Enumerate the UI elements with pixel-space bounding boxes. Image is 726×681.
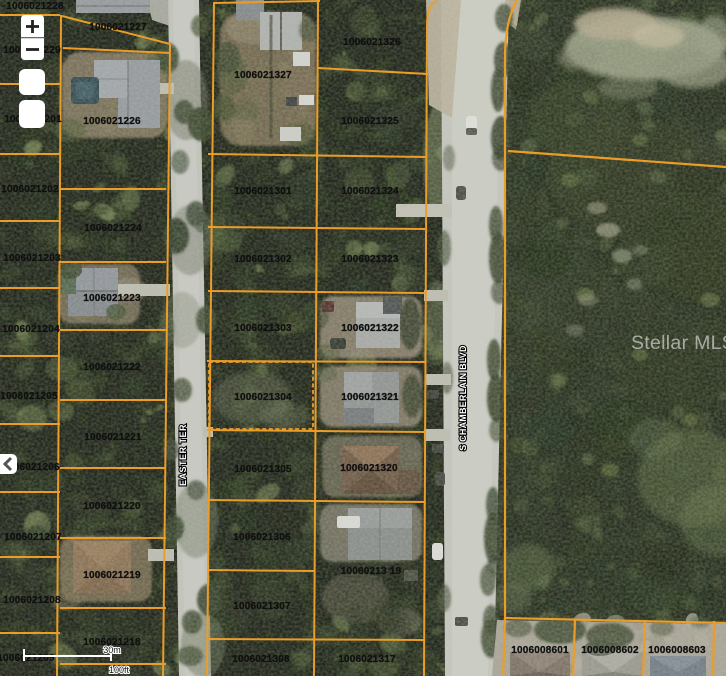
svg-text:1006021224: 1006021224: [84, 223, 142, 234]
svg-text:1006021221: 1006021221: [84, 432, 142, 443]
svg-text:1006021306: 1006021306: [233, 532, 291, 543]
svg-text:1006021307: 1006021307: [233, 601, 291, 612]
svg-text:EASTER TER: EASTER TER: [178, 424, 188, 486]
svg-text:1006021321: 1006021321: [341, 392, 399, 403]
svg-text:1006021305: 1006021305: [234, 464, 292, 475]
svg-text:1006021301: 1006021301: [234, 186, 292, 197]
svg-text:1006021228: 1006021228: [6, 1, 64, 12]
svg-text:1006021223: 1006021223: [83, 293, 141, 304]
svg-text:100ft: 100ft: [109, 665, 130, 675]
svg-text:Stellar MLS: Stellar MLS: [631, 332, 726, 354]
svg-text:S CHAMBERLAIN BLVD: S CHAMBERLAIN BLVD: [458, 345, 468, 451]
svg-text:1006021323: 1006021323: [341, 254, 399, 265]
svg-text:1006021324: 1006021324: [341, 186, 399, 197]
svg-text:1006021209: 1006021209: [0, 653, 55, 664]
svg-text:1006021322: 1006021322: [341, 323, 399, 334]
svg-text:1006021207: 1006021207: [4, 532, 62, 543]
svg-text:1006021302: 1006021302: [234, 254, 292, 265]
svg-text:1006021317: 1006021317: [338, 654, 396, 665]
svg-text:1006021219: 1006021219: [83, 570, 141, 581]
svg-text:1006008602: 1006008602: [581, 645, 639, 656]
svg-text:1006021222: 1006021222: [83, 362, 141, 373]
svg-text:1006021325: 1006021325: [341, 116, 399, 127]
svg-text:1006021326: 1006021326: [343, 37, 401, 48]
svg-text:1006008601: 1006008601: [511, 645, 569, 656]
svg-text:1006021327: 1006021327: [234, 70, 292, 81]
svg-text:1006021227: 1006021227: [89, 22, 147, 33]
svg-text:1006021226: 1006021226: [83, 116, 141, 127]
svg-text:1006008603: 1006008603: [648, 645, 706, 656]
svg-text:10060213 19: 10060213 19: [341, 566, 402, 577]
svg-text:1006021220: 1006021220: [83, 501, 141, 512]
svg-text:1006021204: 1006021204: [2, 324, 60, 335]
svg-text:1006021205: 1006021205: [0, 391, 58, 402]
svg-text:1006021203: 1006021203: [3, 253, 61, 264]
svg-text:1006021208: 1006021208: [3, 595, 61, 606]
svg-text:1006021320: 1006021320: [340, 463, 398, 474]
svg-text:1006021303: 1006021303: [234, 323, 292, 334]
svg-text:30m: 30m: [103, 645, 121, 655]
svg-text:1006021304: 1006021304: [234, 392, 292, 403]
svg-text:1006021202: 1006021202: [1, 184, 59, 195]
svg-text:1006021308: 1006021308: [232, 654, 290, 665]
